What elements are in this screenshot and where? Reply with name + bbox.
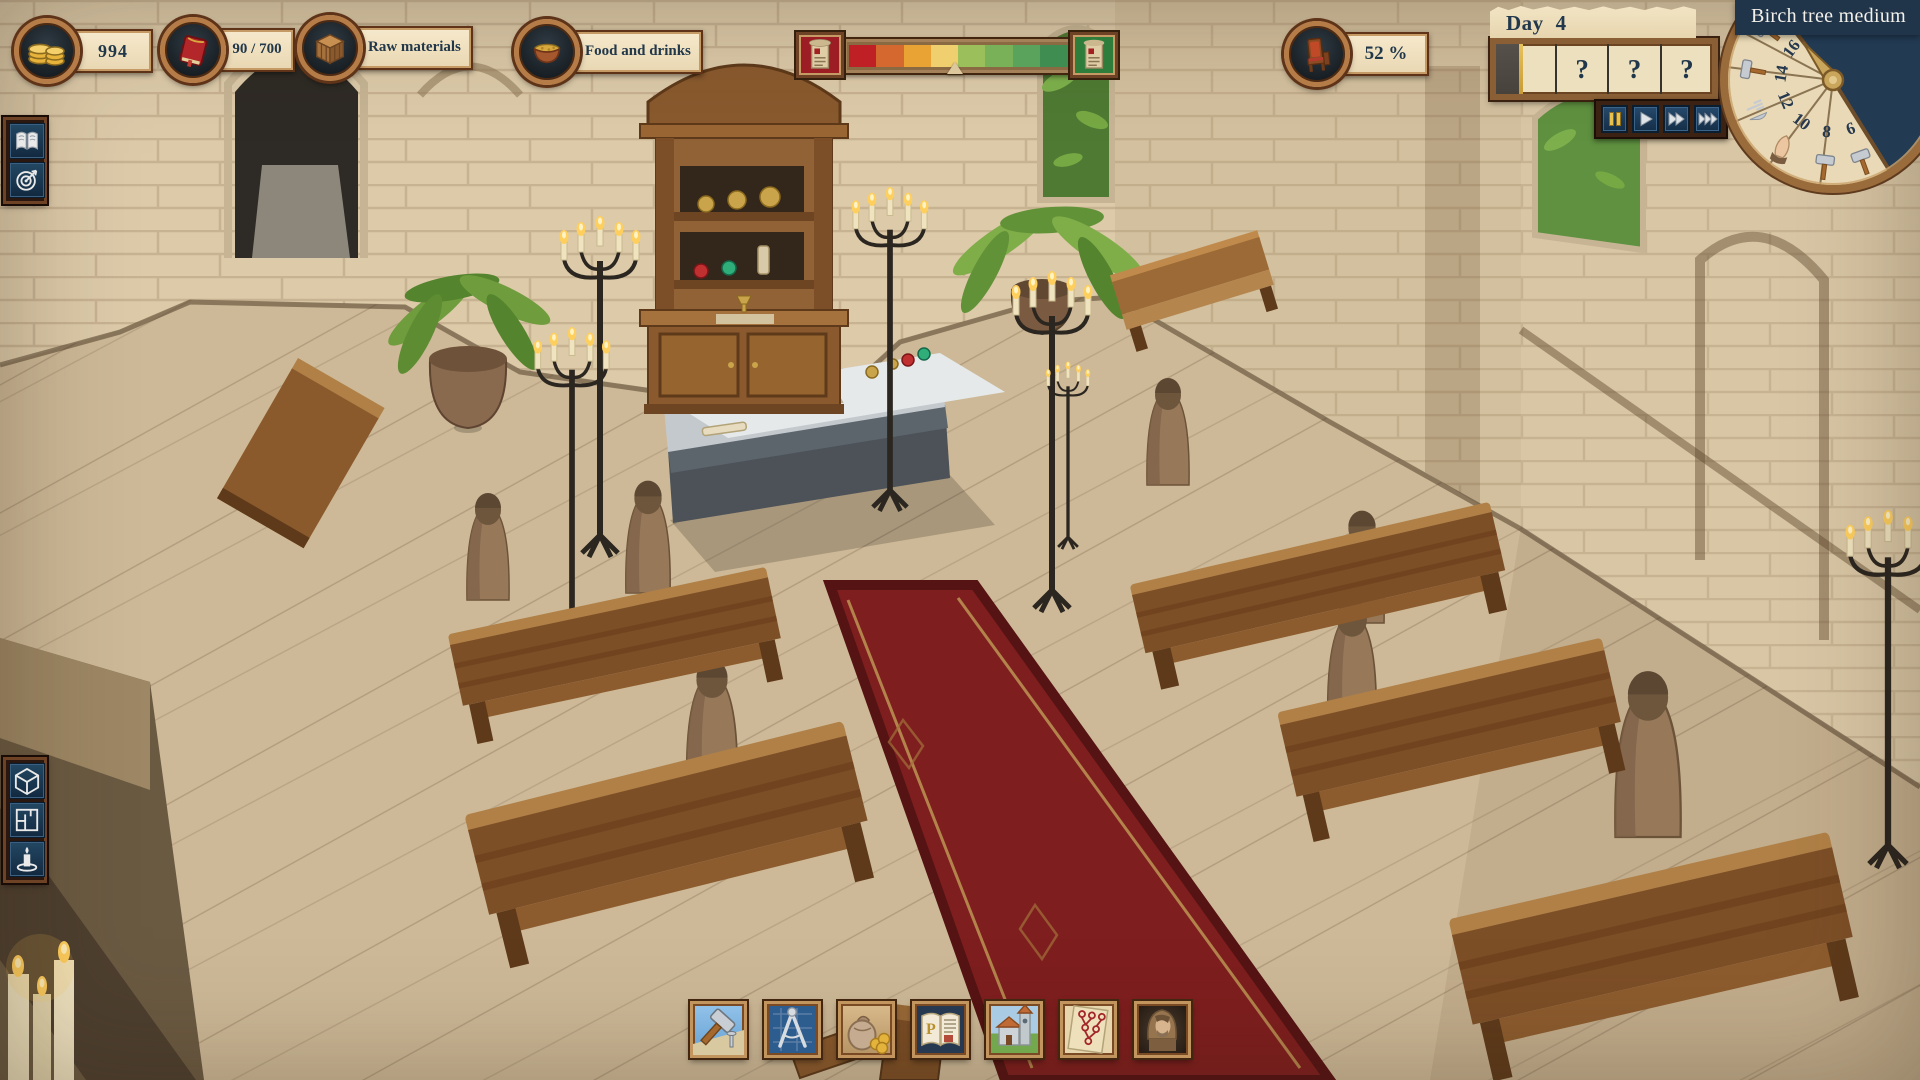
day-label: Day (1506, 11, 1544, 36)
church-icon (989, 1004, 1040, 1055)
approval-indicator: 52 % (1284, 21, 1429, 87)
scriptorium-monogram: P (926, 1021, 936, 1038)
gauge-segment (1013, 45, 1040, 67)
church-button[interactable] (986, 1001, 1043, 1058)
gauge-segment (849, 45, 876, 67)
left-bottom-toolbar (3, 757, 47, 883)
room-planning-button[interactable] (9, 802, 45, 838)
day-slot[interactable]: ? (1607, 44, 1659, 94)
resource-raw-materials: Raw materials (297, 15, 473, 81)
crate-icon[interactable] (297, 15, 363, 81)
illuminated-book-icon: P (915, 1004, 966, 1055)
cabinet[interactable] (640, 65, 848, 414)
research-tree-icon (1063, 1004, 1114, 1055)
floor-plan-icon (14, 807, 40, 833)
game-scene (0, 0, 1920, 1080)
gauge-segment (1040, 45, 1067, 67)
good-reputation-scroll-icon[interactable] (1070, 32, 1118, 78)
reputation-bar[interactable] (842, 37, 1074, 75)
journal-book-icon (14, 129, 40, 153)
left-top-toolbar (3, 117, 47, 204)
day-number: 4 (1556, 11, 1567, 36)
gauge-segment (985, 45, 1012, 67)
gauge-segment (876, 45, 903, 67)
objectives-button[interactable] (9, 162, 45, 198)
coins-icon[interactable] (14, 18, 80, 84)
time-controls (1594, 99, 1728, 139)
tooltip-text: Birch tree medium (1751, 5, 1906, 28)
play-button[interactable] (1632, 105, 1659, 133)
place-object-button[interactable] (9, 763, 45, 799)
journal-button[interactable] (9, 123, 45, 159)
food-drinks-label: Food and drinks (573, 30, 703, 74)
throne-icon[interactable] (1284, 21, 1350, 87)
fast-forward-button[interactable] (1663, 105, 1690, 133)
hammer-icon (693, 1004, 744, 1055)
resource-books: 90 / 700 (160, 17, 295, 83)
bottom-toolbar: P (690, 1001, 1191, 1058)
construction-button[interactable] (690, 1001, 747, 1058)
day-panel: Day 4 ? ? ? (1490, 4, 1718, 100)
day-progress-bar[interactable]: ? ? ? (1490, 38, 1718, 100)
monks-button[interactable] (1134, 1001, 1191, 1058)
pause-button[interactable] (1601, 105, 1628, 133)
blueprints-button[interactable] (764, 1001, 821, 1058)
reputation-marker (947, 62, 963, 74)
day-slot[interactable]: ? (1660, 44, 1712, 94)
raw-materials-label: Raw materials (356, 26, 473, 70)
approval-value: 52 % (1343, 32, 1429, 76)
game-window: 994 90 / 700 Raw materials (0, 0, 1920, 1080)
coin-pouch-icon (841, 1004, 892, 1055)
research-button[interactable] (1060, 1001, 1117, 1058)
trade-button[interactable] (838, 1001, 895, 1058)
hover-tooltip: Birch tree medium (1735, 0, 1920, 35)
resource-food: Food and drinks (514, 19, 703, 85)
gauge-segment (904, 45, 931, 67)
cube-icon (14, 767, 40, 795)
gold-amount: 994 (73, 29, 153, 73)
bad-reputation-scroll-icon[interactable] (796, 32, 844, 78)
objectives-target-icon (14, 167, 40, 193)
day-slot-empty (1523, 44, 1555, 94)
candle-icon (14, 845, 40, 873)
books-amount: 90 / 700 (219, 28, 295, 72)
monk-icon (1137, 1004, 1188, 1055)
book-icon[interactable] (160, 17, 226, 83)
lighting-button[interactable] (9, 841, 45, 877)
scriptorium-button[interactable]: P (912, 1001, 969, 1058)
resource-gold: 994 (14, 18, 153, 84)
day-header: Day 4 (1490, 4, 1696, 38)
day-elapsed (1496, 44, 1519, 94)
compass-icon (767, 1004, 818, 1055)
bowl-icon[interactable] (514, 19, 580, 85)
day-slot[interactable]: ? (1555, 44, 1607, 94)
reputation-gauge (796, 30, 1118, 82)
